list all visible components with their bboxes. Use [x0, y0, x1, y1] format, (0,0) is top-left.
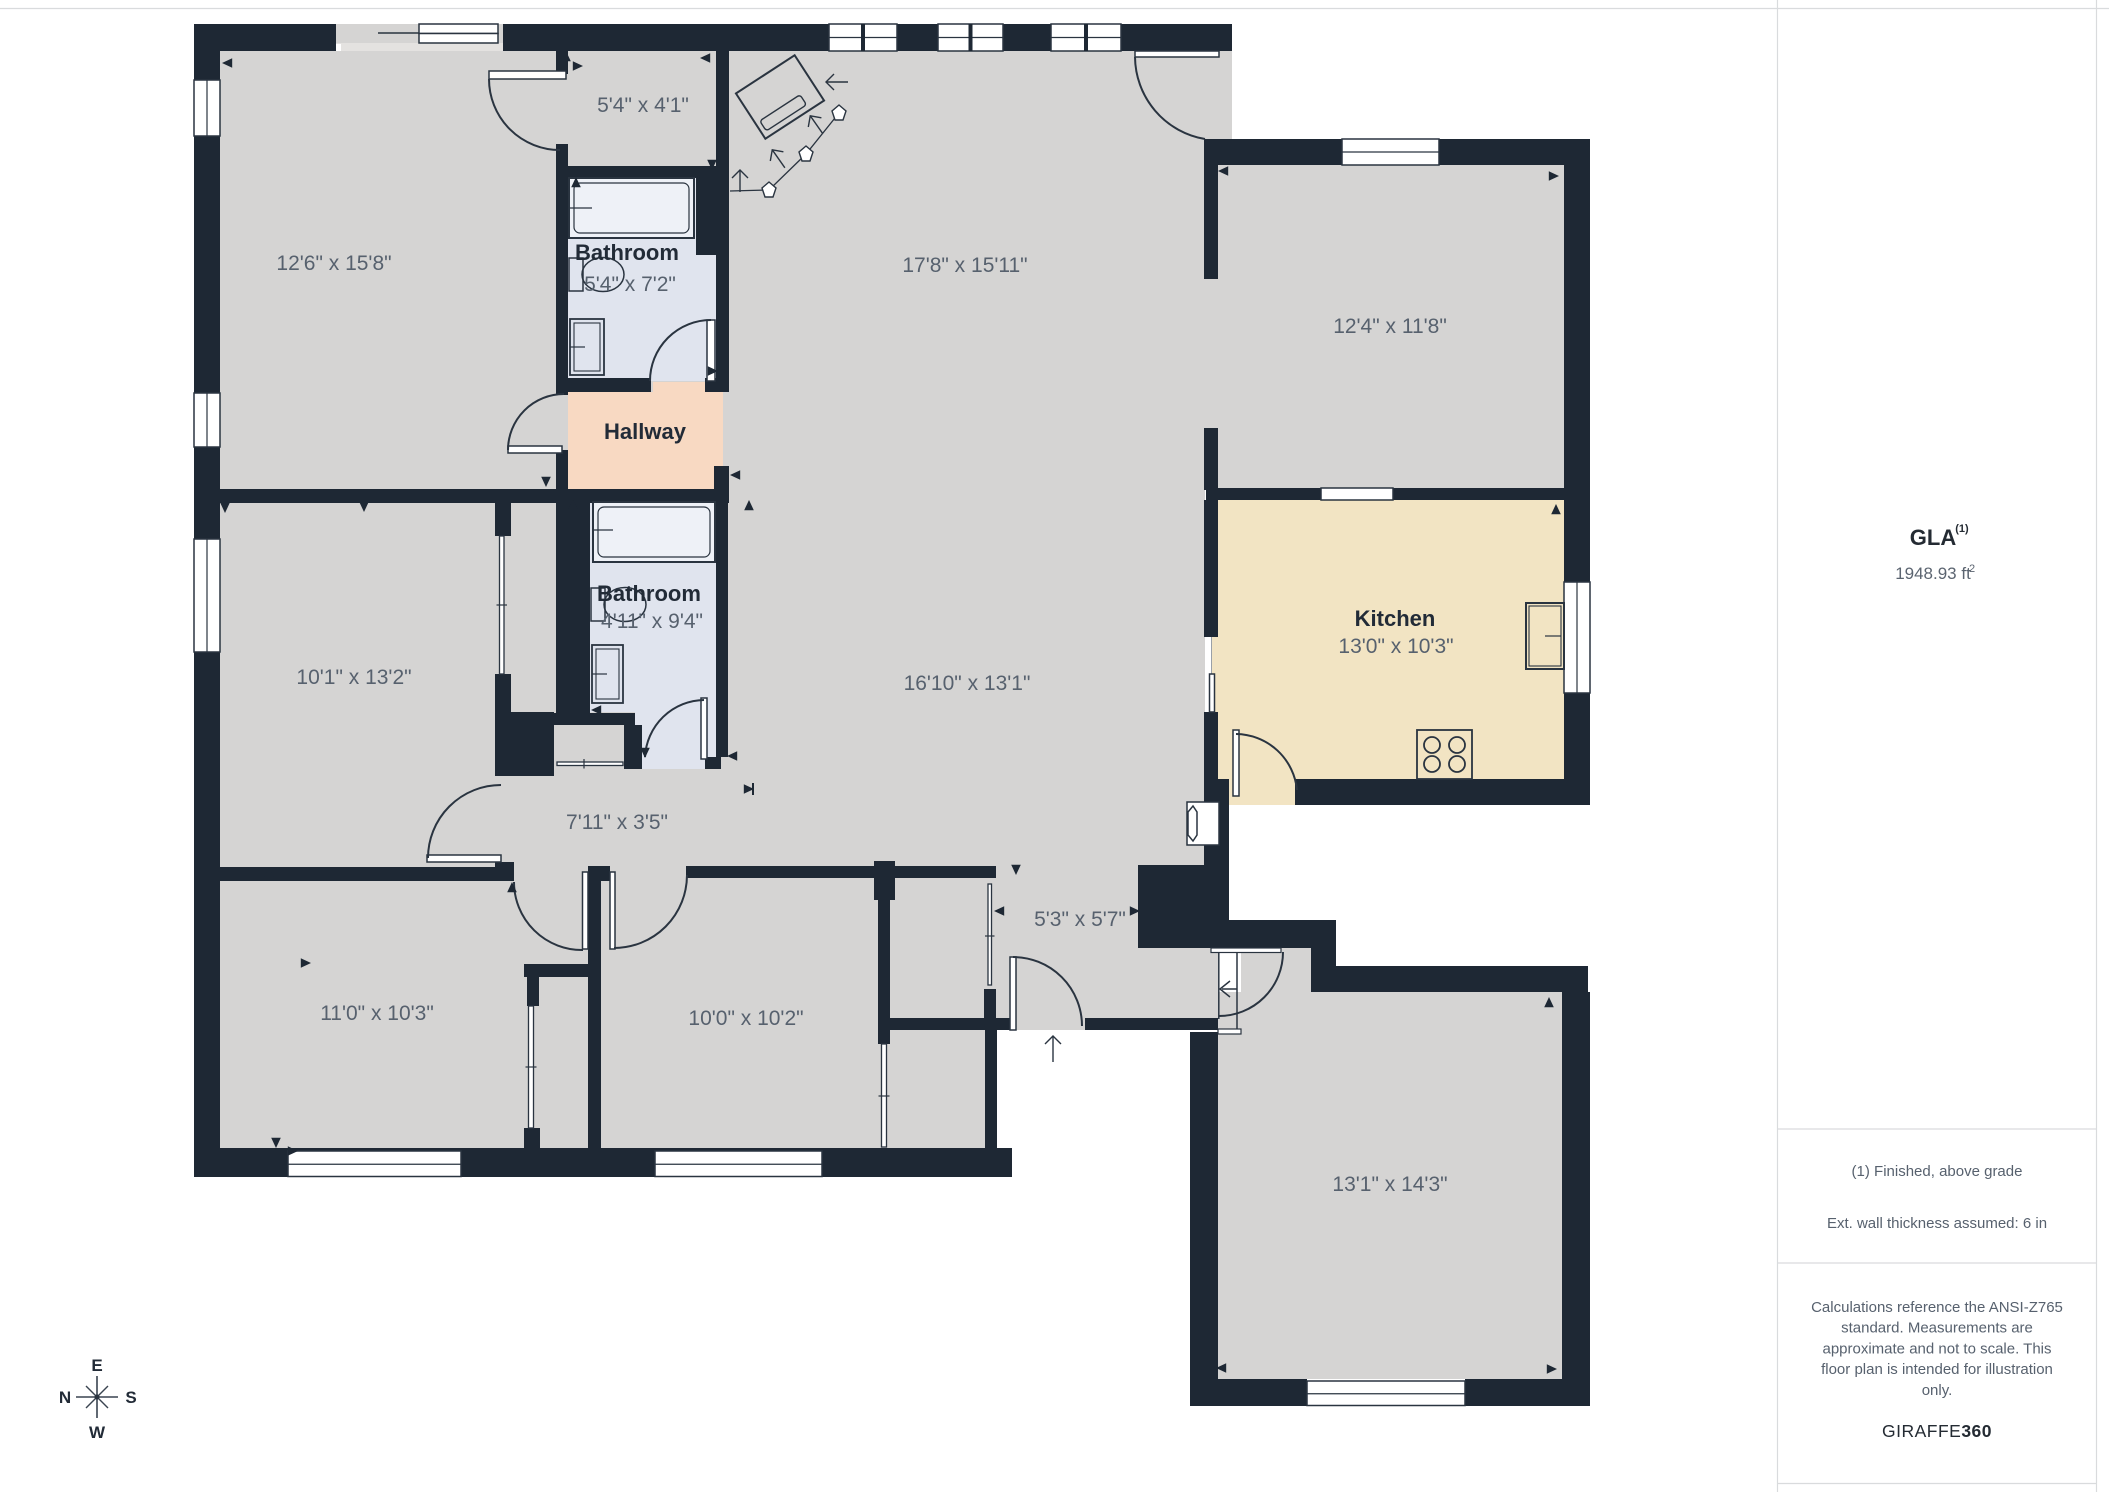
svg-text:Bathroom: Bathroom — [597, 581, 701, 606]
svg-text:7'11" x 3'5": 7'11" x 3'5" — [566, 811, 668, 834]
svg-text:16'10" x 13'1": 16'10" x 13'1" — [904, 672, 1031, 695]
svg-text:12'6" x 15'8": 12'6" x 15'8" — [276, 252, 391, 275]
svg-text:13'1" x 14'3": 13'1" x 14'3" — [1332, 1173, 1447, 1196]
svg-text:GIRAFFE360: GIRAFFE360 — [1882, 1421, 1992, 1441]
svg-text:12'4" x 11'8": 12'4" x 11'8" — [1333, 315, 1447, 338]
svg-text:Ext. wall thickness assumed: 6: Ext. wall thickness assumed: 6 in — [1827, 1215, 2047, 1232]
svg-text:(1) Finished, above grade: (1) Finished, above grade — [1852, 1163, 2023, 1180]
svg-text:2: 2 — [1969, 563, 1975, 575]
svg-text:Calculations reference the ANS: Calculations reference the ANSI-Z765 — [1811, 1299, 2063, 1316]
svg-text:Bathroom: Bathroom — [575, 240, 679, 265]
svg-text:5'4" x 7'2": 5'4" x 7'2" — [584, 273, 676, 296]
svg-text:5'3" x 5'7": 5'3" x 5'7" — [1034, 908, 1126, 931]
svg-text:S: S — [125, 1388, 136, 1407]
svg-text:(1): (1) — [1955, 523, 1969, 535]
svg-text:11'0" x 10'3": 11'0" x 10'3" — [320, 1002, 434, 1025]
svg-text:only.: only. — [1922, 1382, 1953, 1399]
svg-text:10'0" x 10'2": 10'0" x 10'2" — [688, 1007, 803, 1030]
svg-text:N: N — [59, 1388, 71, 1407]
svg-text:approximate and not to scale.: approximate and not to scale. This — [1822, 1340, 2051, 1357]
svg-text:4'11" x 9'4": 4'11" x 9'4" — [601, 610, 703, 633]
svg-text:1948.93 ft: 1948.93 ft — [1895, 564, 1971, 583]
svg-text:13'0" x 10'3": 13'0" x 10'3" — [1338, 635, 1453, 658]
svg-text:GLA: GLA — [1910, 525, 1957, 550]
svg-text:E: E — [91, 1356, 102, 1375]
svg-text:floor plan is intended for ill: floor plan is intended for illustration — [1821, 1361, 2053, 1378]
svg-text:standard. Measurements are: standard. Measurements are — [1841, 1320, 2033, 1337]
svg-text:10'1" x 13'2": 10'1" x 13'2" — [296, 666, 411, 689]
svg-text:Hallway: Hallway — [604, 419, 687, 444]
svg-text:17'8" x 15'11": 17'8" x 15'11" — [902, 254, 1027, 277]
svg-text:W: W — [89, 1423, 106, 1442]
svg-text:5'4" x 4'1": 5'4" x 4'1" — [597, 94, 689, 117]
svg-text:Kitchen: Kitchen — [1355, 606, 1436, 631]
